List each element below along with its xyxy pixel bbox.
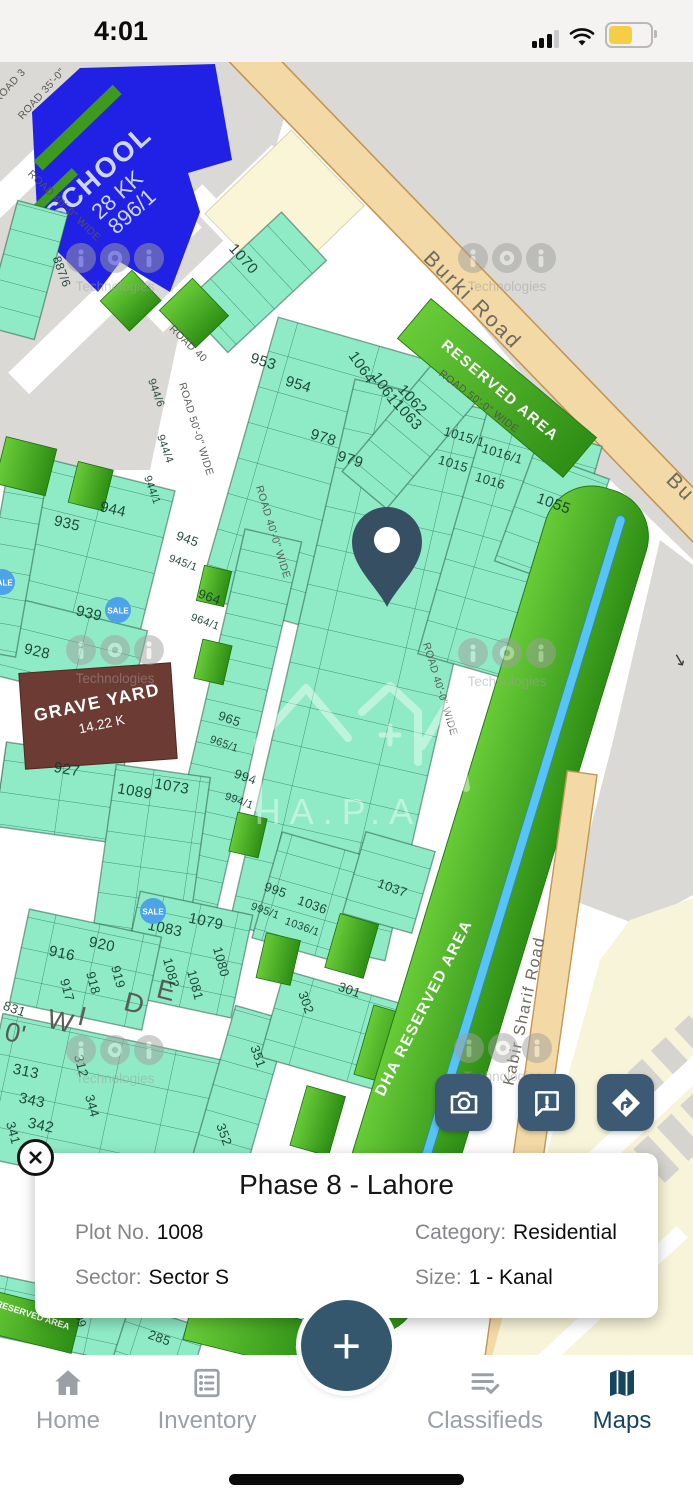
- nav-label-home: Home: [36, 1407, 100, 1435]
- nav-label-classifieds: Classifieds: [427, 1407, 543, 1435]
- center-watermark-caption: HA.P.As: [255, 791, 449, 832]
- card-title: Phase 8 - Lahore: [35, 1169, 658, 1201]
- close-card-button[interactable]: [17, 1139, 54, 1176]
- directions-button[interactable]: [597, 1074, 654, 1131]
- category-label: Category:: [415, 1221, 506, 1244]
- ioi-watermark-instance: [458, 243, 556, 294]
- category-row: Category:Residential: [415, 1221, 617, 1245]
- app-screen: Technologies SCHOOL 28 KK 896/1 Burki: [0, 0, 693, 1500]
- category-value: Residential: [513, 1221, 617, 1244]
- wifi-icon: [569, 28, 595, 48]
- home-indicator[interactable]: [229, 1474, 464, 1485]
- sale-badge-label: SALE: [107, 607, 129, 616]
- plot-number-row: Plot No.1008: [75, 1221, 203, 1245]
- nav-label-maps: Maps: [593, 1407, 652, 1435]
- feedback-icon: [530, 1086, 564, 1120]
- nav-item-classifieds[interactable]: Classifieds: [415, 1365, 555, 1435]
- ioi-watermark-instance: [66, 1035, 164, 1086]
- status-time: 4:01: [86, 16, 156, 47]
- size-label: Size:: [415, 1266, 462, 1289]
- battery-icon: [605, 22, 653, 48]
- add-button[interactable]: +: [301, 1300, 392, 1391]
- ioi-watermark-instance: [458, 638, 556, 689]
- camera-icon: [447, 1086, 481, 1120]
- feedback-button[interactable]: [518, 1074, 575, 1131]
- nav-item-home[interactable]: Home: [0, 1365, 138, 1435]
- plot-info-card: Phase 8 - Lahore Plot No.1008 Category:R…: [35, 1153, 658, 1318]
- classifieds-icon: [467, 1365, 503, 1401]
- camera-button[interactable]: [435, 1074, 492, 1131]
- sale-badge-label: SALE: [142, 908, 164, 917]
- sale-badge[interactable]: SALE: [105, 597, 131, 623]
- sector-row: Sector:Sector S: [75, 1266, 229, 1290]
- maps-icon: [604, 1365, 640, 1401]
- sale-badge[interactable]: SALE: [140, 898, 166, 924]
- nav-item-inventory[interactable]: Inventory: [137, 1365, 277, 1435]
- size-value: 1 - Kanal: [469, 1266, 553, 1289]
- plot-number-value: 1008: [157, 1221, 204, 1244]
- close-icon: [28, 1150, 43, 1165]
- ioi-watermark-instance: [66, 243, 164, 294]
- directions-icon: [608, 1085, 644, 1121]
- nav-label-inventory: Inventory: [158, 1407, 257, 1435]
- add-button-label: +: [332, 1317, 361, 1375]
- inventory-icon: [189, 1365, 225, 1401]
- sector-value: Sector S: [149, 1266, 230, 1289]
- sale-badge-label: SALE: [0, 579, 13, 588]
- home-icon: [50, 1365, 86, 1401]
- nav-item-maps[interactable]: Maps: [552, 1365, 692, 1435]
- ioi-watermark-instance: [66, 635, 164, 686]
- sector-label: Sector:: [75, 1266, 142, 1289]
- plot-number-label: Plot No.: [75, 1221, 150, 1244]
- status-bar: 4:01: [0, 0, 693, 62]
- size-row: Size:1 - Kanal: [415, 1266, 553, 1290]
- cellular-signal-icon: [532, 30, 560, 48]
